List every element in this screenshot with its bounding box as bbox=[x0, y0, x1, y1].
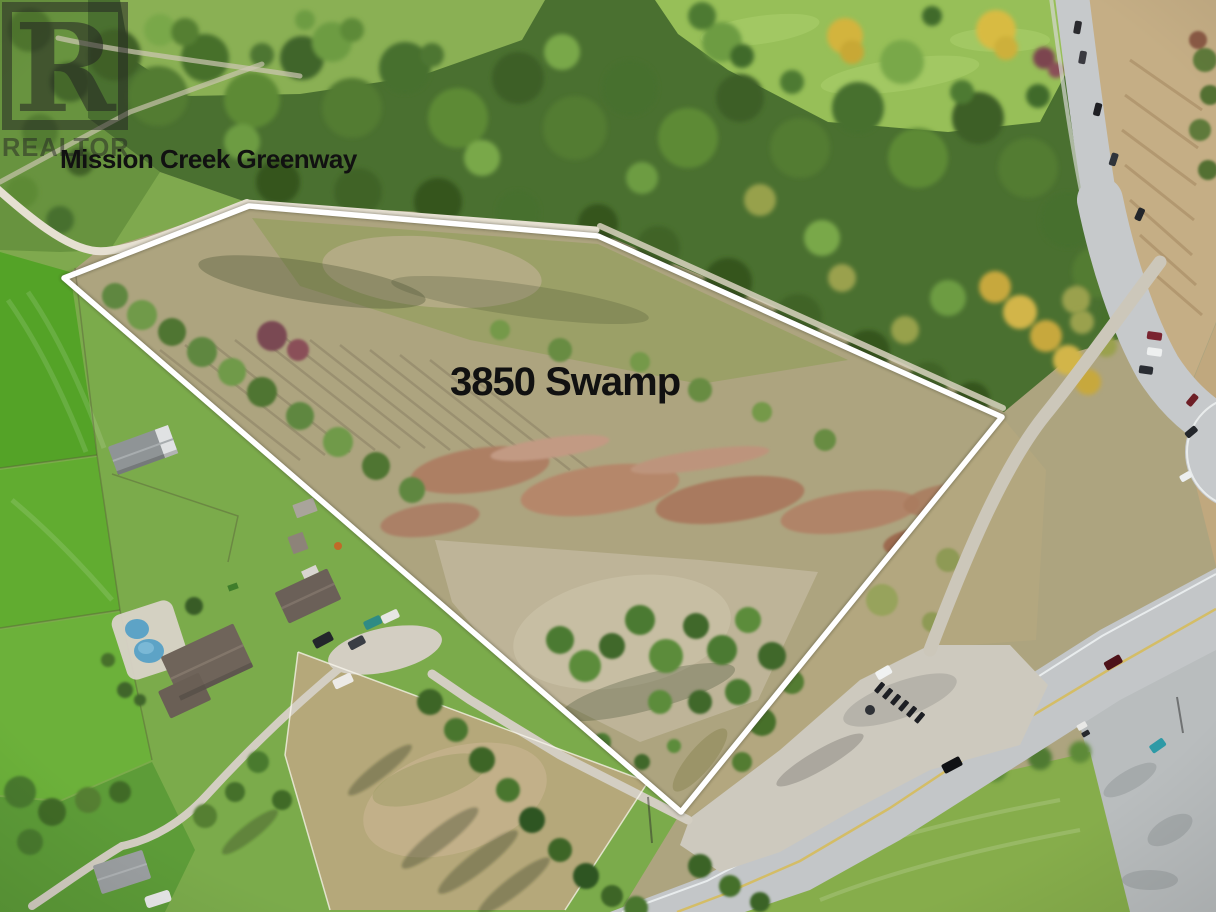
aerial-listing-photo: R REALTOR Mission Creek Greenway 3850 Sw… bbox=[0, 0, 1216, 912]
realtor-watermark: R REALTOR bbox=[2, 2, 152, 163]
realtor-logo-box: R bbox=[2, 2, 128, 130]
property-address-label: 3850 Swamp bbox=[450, 360, 680, 405]
vignette bbox=[0, 0, 1216, 912]
realtor-logo-letter: R bbox=[14, 7, 115, 129]
greenway-label: Mission Creek Greenway bbox=[60, 144, 357, 175]
aerial-photo-graphic bbox=[0, 0, 1216, 912]
